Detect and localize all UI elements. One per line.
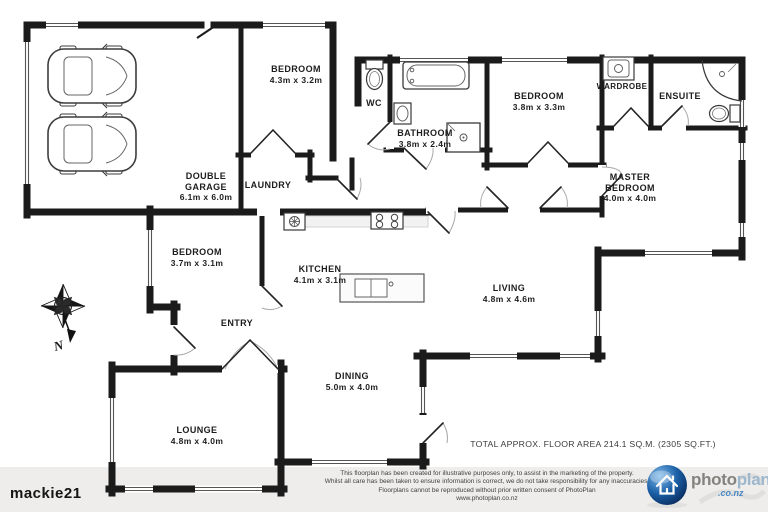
watermark-text: mackie21 xyxy=(10,485,82,502)
car-icon xyxy=(48,44,136,108)
compass-north-label: N xyxy=(51,337,65,354)
room-label-bedroom-top: BEDROOM 4.3m x 3.2m xyxy=(270,64,323,85)
disclaimer-text: This floorplan has been created for illu… xyxy=(325,470,649,504)
washing-machine-icon xyxy=(284,213,305,230)
car-icon xyxy=(48,112,136,176)
brand-domain: .co.nz xyxy=(718,488,744,498)
floorplan-page: N DOUBLE GARAGE 6.1m x 6.0m BEDROOM 4.3m… xyxy=(0,0,768,512)
room-label-bedroom-mid: BEDROOM 3.8m x 3.3m xyxy=(513,91,566,112)
door-openings xyxy=(170,122,686,443)
logo-sphere xyxy=(647,465,687,505)
room-label-bedroom-left: BEDROOM 3.7m x 3.1m xyxy=(171,247,224,268)
room-label-dining: DINING 5.0m x 4.0m xyxy=(326,371,379,392)
room-label-kitchen: KITCHEN 4.1m x 3.1m xyxy=(294,264,347,285)
room-label-ensuite: ENSUITE xyxy=(659,91,701,102)
room-label-double-garage: DOUBLE GARAGE 6.1m x 6.0m xyxy=(180,171,233,203)
floorplan-drawing: N xyxy=(0,0,768,512)
room-label-lounge: LOUNGE 4.8m x 4.0m xyxy=(171,425,224,446)
disclaimer-line: Whilst all care has been taken to ensure… xyxy=(325,478,649,486)
room-label-wc: WC xyxy=(366,98,382,109)
disclaimer-url: www.photoplan.co.nz xyxy=(325,495,649,503)
corner-shower-icon xyxy=(702,60,742,101)
toilet-icon xyxy=(710,105,741,122)
photoplan-wordmark: photoplan xyxy=(691,470,768,490)
brand-word-plan: plan xyxy=(737,470,768,489)
room-label-master-bedroom: MASTER BEDROOM 4.0m x 4.0m xyxy=(604,172,657,204)
compass-icon: N xyxy=(41,284,85,354)
total-floor-area: TOTAL APPROX. FLOOR AREA 214.1 SQ.M. (23… xyxy=(470,439,716,449)
room-label-entry: ENTRY xyxy=(221,318,253,329)
vanity-icon xyxy=(603,57,634,80)
brand-word-photo: photo xyxy=(691,470,737,489)
bathtub-icon xyxy=(403,62,469,89)
disclaimer-line: Floorplans cannot be reproduced without … xyxy=(325,487,649,495)
room-label-wardrobe: WARDROBE xyxy=(597,82,648,93)
basin-icon xyxy=(394,103,411,124)
kitchen-counter xyxy=(305,216,428,227)
kitchen-island xyxy=(340,274,424,302)
room-label-laundry: LAUNDRY xyxy=(245,180,291,191)
toilet-icon xyxy=(366,60,383,90)
stove-icon xyxy=(371,212,403,229)
room-label-bathroom: BATHROOM 3.8m x 2.4m xyxy=(397,128,453,149)
room-label-living: LIVING 4.8m x 4.6m xyxy=(483,283,536,304)
disclaimer-line: This floorplan has been created for illu… xyxy=(325,470,649,478)
